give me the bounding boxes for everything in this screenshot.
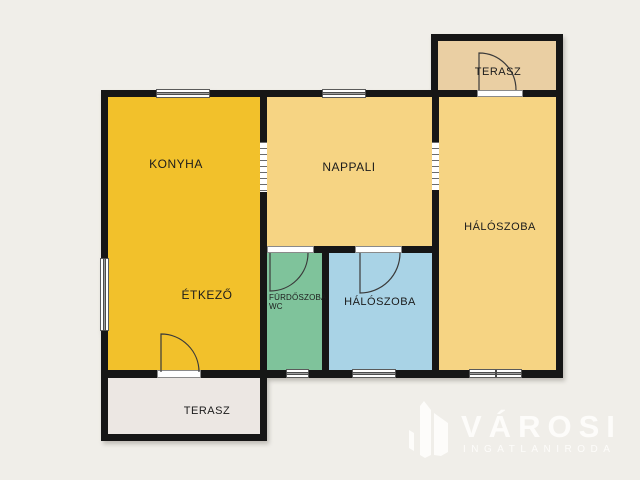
door-swing-icon <box>270 253 308 291</box>
room-label-terasz-felso: TERASZ <box>475 66 521 78</box>
door-swing-icon <box>161 334 199 372</box>
room-label-konyha: KONYHA <box>149 157 203 171</box>
door-swing-icons <box>0 0 640 480</box>
room-label-haloszoba-kis: HÁLÓSZOBA <box>344 296 416 308</box>
room-label-furdoszoba: FÜRDŐSZOBA WC <box>269 293 327 311</box>
room-label-nappali: NAPPALI <box>322 160 375 174</box>
room-label-terasz-also: TERASZ <box>184 405 230 417</box>
door-swing-icon <box>360 253 400 293</box>
room-label-haloszoba-nagy: HÁLÓSZOBA <box>464 221 536 233</box>
floorplan: KONYHA ÉTKEZŐ NAPPALI TERASZ HÁLÓSZOBA F… <box>0 0 640 480</box>
room-label-etkezo: ÉTKEZŐ <box>181 288 232 302</box>
floorplan-canvas: VÁROSI INGATLANIRODA <box>0 0 640 480</box>
